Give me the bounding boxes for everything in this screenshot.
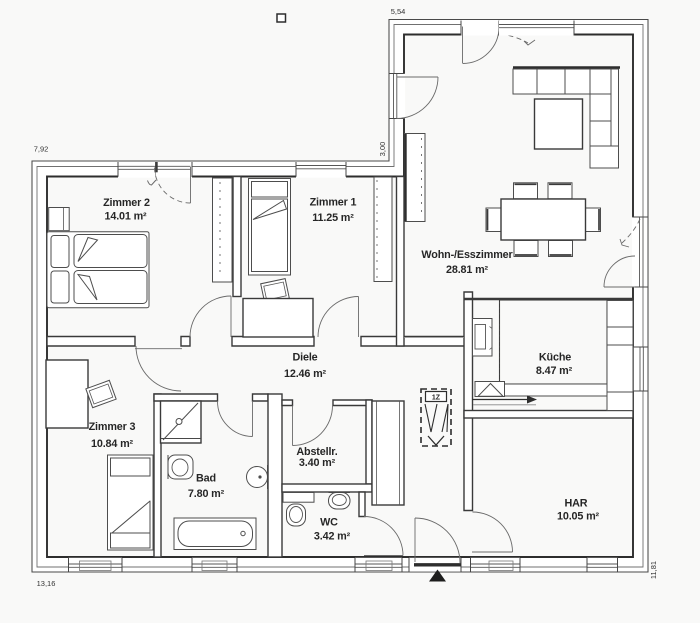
svg-text:Küche: Küche	[539, 352, 571, 364]
svg-text:10.84 m²: 10.84 m²	[91, 438, 134, 450]
svg-text:5,54: 5,54	[391, 7, 406, 16]
svg-text:14.01 m²: 14.01 m²	[104, 211, 147, 223]
svg-text:11,81: 11,81	[649, 561, 658, 579]
svg-text:3,00: 3,00	[378, 142, 387, 157]
svg-text:12.46 m²: 12.46 m²	[284, 368, 327, 380]
svg-text:7,92: 7,92	[34, 145, 49, 154]
svg-text:Diele: Diele	[292, 352, 317, 364]
svg-text:WC: WC	[320, 517, 338, 529]
svg-text:Zimmer 1: Zimmer 1	[310, 197, 357, 209]
svg-text:Zimmer 3: Zimmer 3	[89, 421, 136, 433]
svg-text:28.81 m²: 28.81 m²	[446, 264, 489, 276]
svg-text:HAR: HAR	[565, 498, 588, 510]
svg-text:7.80 m²: 7.80 m²	[188, 488, 225, 500]
svg-text:Bad: Bad	[196, 473, 216, 485]
svg-text:8.47 m²: 8.47 m²	[536, 365, 573, 377]
svg-text:11.25 m²: 11.25 m²	[312, 212, 354, 224]
svg-text:Zimmer 2: Zimmer 2	[103, 197, 150, 209]
svg-text:13,16: 13,16	[37, 579, 56, 588]
svg-text:3.42 m²: 3.42 m²	[314, 531, 351, 543]
svg-text:1Z: 1Z	[432, 395, 441, 402]
svg-text:10.05 m²: 10.05 m²	[557, 511, 600, 523]
svg-text:Wohn-/Esszimmer: Wohn-/Esszimmer	[421, 249, 513, 261]
svg-text:3.40 m²: 3.40 m²	[299, 457, 336, 469]
